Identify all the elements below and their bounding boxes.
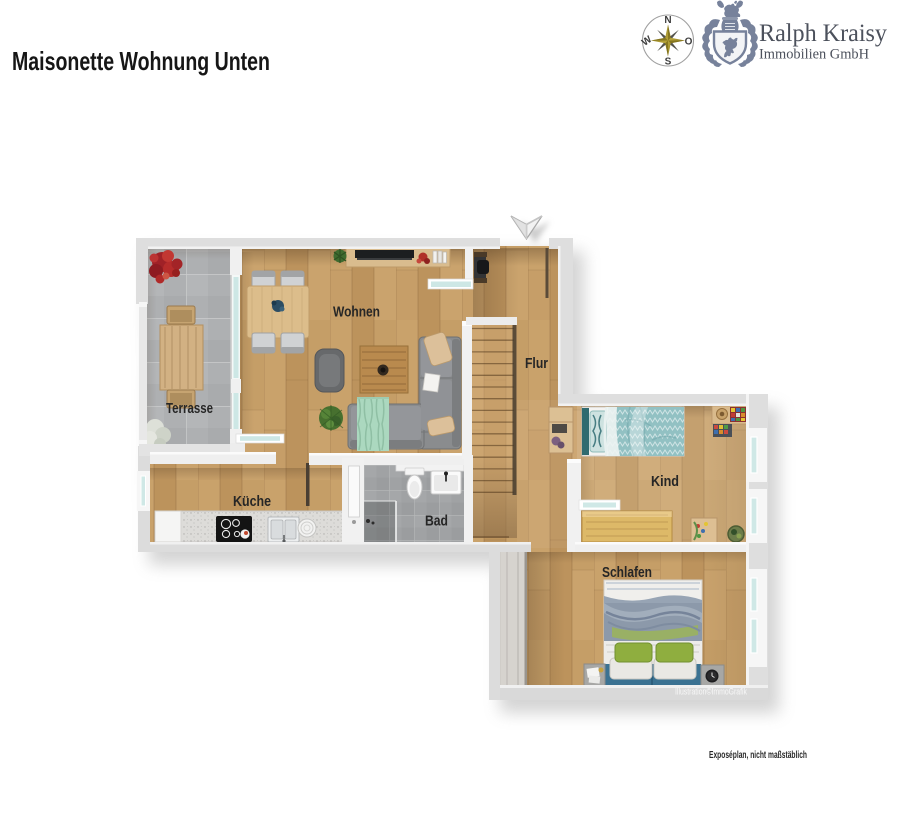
svg-text:Schlafen: Schlafen [602, 564, 652, 581]
svg-text:Illustration©ImmoGrafik: Illustration©ImmoGrafik [675, 687, 747, 697]
svg-text:Bad: Bad [425, 513, 448, 530]
svg-text:N: N [664, 15, 671, 26]
svg-text:Kind: Kind [651, 473, 679, 490]
svg-text:Maisonette Wohnung Unten: Maisonette Wohnung Unten [12, 46, 270, 76]
svg-text:Terrasse: Terrasse [166, 400, 213, 417]
svg-text:Flur: Flur [525, 355, 548, 372]
svg-text:Küche: Küche [233, 493, 271, 510]
svg-text:Immobilien GmbH: Immobilien GmbH [759, 47, 869, 63]
svg-text:Ralph Kraisy: Ralph Kraisy [759, 20, 887, 47]
svg-text:Exposéplan, nicht maßstäblich: Exposéplan, nicht maßstäblich [709, 749, 807, 761]
svg-text:Wohnen: Wohnen [333, 304, 380, 321]
svg-text:S: S [665, 56, 672, 67]
svg-text:O: O [685, 36, 693, 47]
